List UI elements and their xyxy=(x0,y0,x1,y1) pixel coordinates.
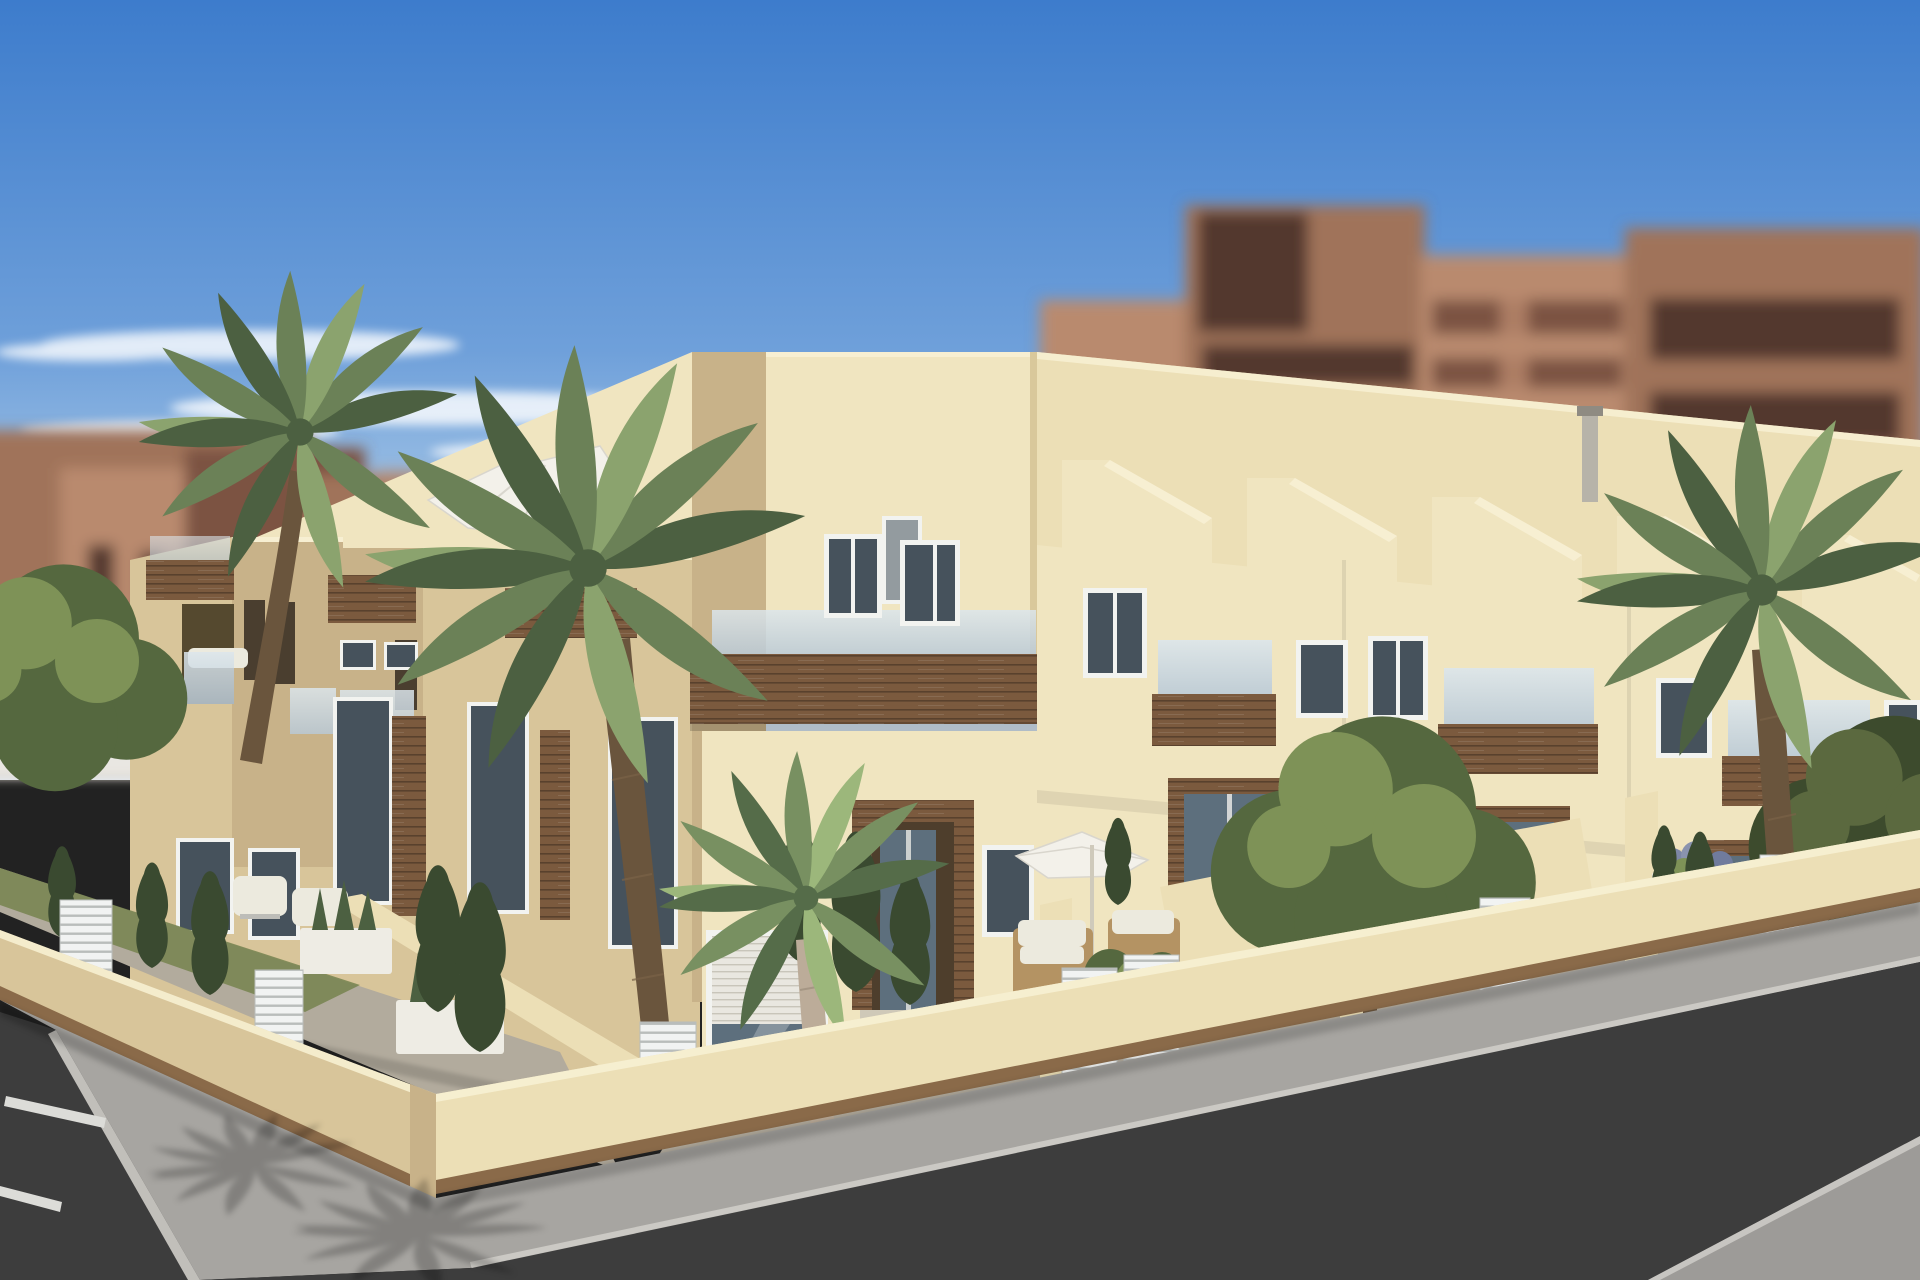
scene-canvas: 3D architectural render of a cream corne… xyxy=(0,0,1920,1280)
window xyxy=(824,534,882,618)
balcony-glass xyxy=(290,688,336,734)
window xyxy=(1368,636,1428,720)
window xyxy=(1083,588,1147,678)
chimney xyxy=(1582,412,1598,502)
balcony-box xyxy=(1438,668,1598,774)
render-image: 3D architectural render of a cream corne… xyxy=(0,0,1920,1280)
chimney-cap xyxy=(1577,406,1603,416)
balcony-glass xyxy=(184,652,234,704)
wood-beam xyxy=(146,560,234,600)
wood-pilaster xyxy=(392,716,426,916)
window xyxy=(900,540,960,626)
wood-pilaster xyxy=(540,730,570,920)
balcony-box xyxy=(1152,640,1276,746)
window xyxy=(1296,640,1348,718)
corner-terrace xyxy=(690,610,1038,731)
roof-rail-glass xyxy=(150,536,230,560)
